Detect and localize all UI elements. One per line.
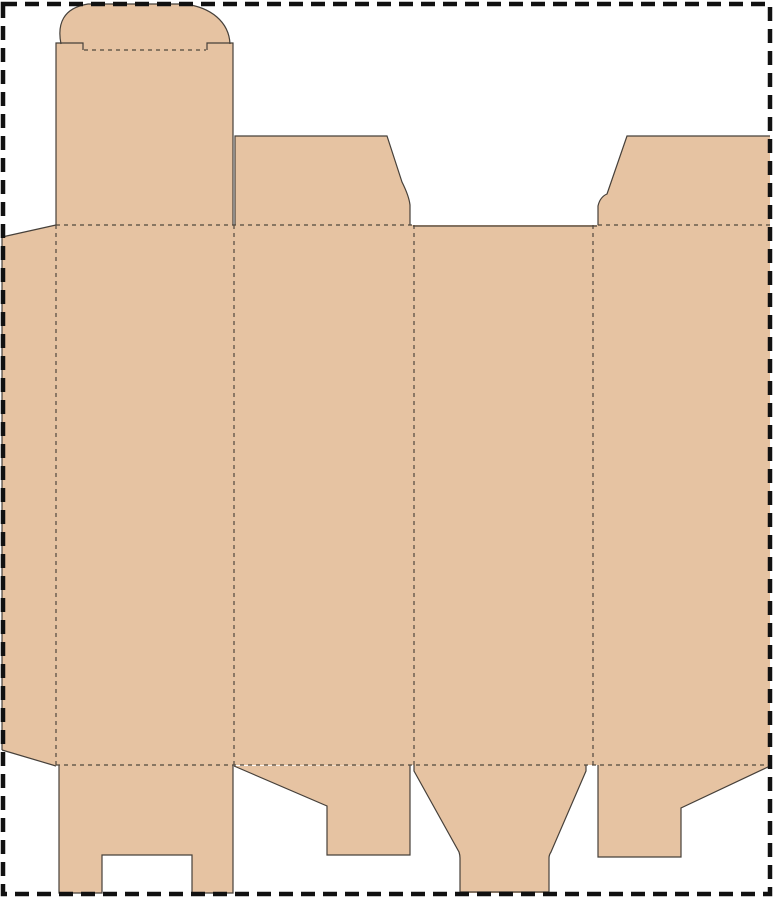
bottom-flap-panel-2 — [234, 765, 410, 855]
main-panels — [56, 225, 770, 765]
dieline-canvas — [0, 0, 773, 900]
glue-flap — [2, 225, 56, 766]
tuck-flap-panel — [56, 43, 233, 225]
dust-flap-panel-2 — [235, 136, 410, 225]
dust-flap-panel-4 — [598, 136, 770, 225]
bottom-flap-panel-3 — [414, 765, 586, 893]
bottom-flap-panel-1 — [59, 765, 233, 893]
tuck-tongue — [60, 4, 230, 50]
box-dieline-template — [0, 0, 773, 900]
